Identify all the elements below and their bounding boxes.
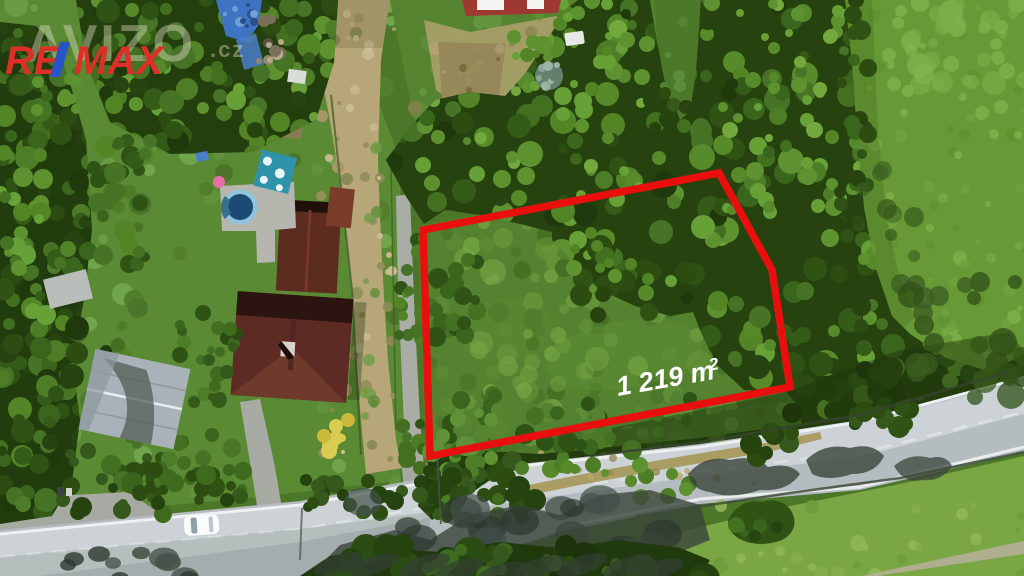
svg-text:MAX: MAX (74, 39, 165, 83)
svg-text:.cz: .cz (210, 37, 245, 62)
